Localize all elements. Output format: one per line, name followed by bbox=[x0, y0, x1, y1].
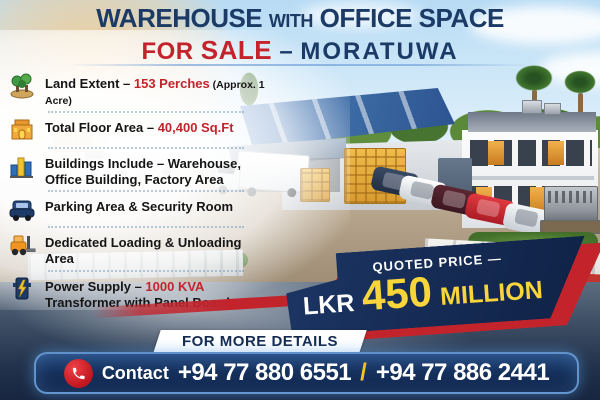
phone-number-2[interactable]: +94 77 886 2441 bbox=[376, 359, 549, 387]
office-roof bbox=[468, 112, 596, 132]
parking-car-icon bbox=[8, 195, 36, 223]
feature-row-buildings: Buildings Include – Warehouse, Office Bu… bbox=[8, 152, 276, 188]
phone-icon bbox=[64, 359, 93, 388]
feature-text: Dedicated Loading & Unloading Area bbox=[45, 231, 269, 267]
headline: WAREHOUSE WITH OFFICE SPACE bbox=[0, 4, 600, 33]
warehouse-sale-poster: WAREHOUSE WITH OFFICE SPACE FOR SALE – M… bbox=[0, 0, 600, 400]
contact-label: Contact bbox=[102, 363, 169, 384]
poster-header: WAREHOUSE WITH OFFICE SPACE FOR SALE – M… bbox=[0, 4, 600, 66]
power-transformer-icon bbox=[8, 275, 36, 303]
feature-text: Buildings Include – Warehouse, Office Bu… bbox=[45, 152, 241, 188]
land-trees-icon bbox=[8, 72, 36, 100]
feature-highlight: 153 Perches bbox=[134, 76, 210, 91]
feature-label: Power Supply – bbox=[45, 279, 145, 294]
feature-row-land-extent: Land Extent – 153 Perches (Approx. 1 Acr… bbox=[8, 72, 276, 108]
details-label: FOR MORE DETAILS bbox=[157, 330, 363, 353]
header-divider bbox=[70, 64, 530, 66]
list-separator bbox=[48, 111, 244, 113]
headline-office-space: OFFICE SPACE bbox=[320, 3, 504, 33]
feature-list: Land Extent – 153 Perches (Approx. 1 Acr… bbox=[8, 72, 276, 311]
feature-highlight: 1000 KVA bbox=[145, 279, 204, 294]
palm-tree bbox=[558, 66, 600, 117]
rooftop-ac-unit bbox=[544, 103, 561, 115]
headline-with: WITH bbox=[269, 11, 313, 31]
details-banner: FOR MORE DETAILS bbox=[153, 330, 366, 353]
feature-text: Total Floor Area – 40,400 Sq.Ft bbox=[45, 116, 234, 136]
feature-label: Land Extent – bbox=[45, 76, 134, 91]
feature-label: Total Floor Area – bbox=[45, 120, 158, 135]
subheadline: FOR SALE – MORATUWA bbox=[0, 35, 600, 66]
feature-row-parking: Parking Area & Security Room bbox=[8, 195, 276, 223]
phone-handset-icon bbox=[71, 366, 86, 381]
phone-separator: / bbox=[360, 359, 367, 387]
list-separator bbox=[48, 226, 244, 228]
price-amount: 450 bbox=[360, 271, 433, 318]
feature-label: Dedicated Loading & Unloading Area bbox=[45, 235, 241, 266]
rooftop-ac-unit bbox=[522, 100, 542, 114]
phone-number-1[interactable]: +94 77 880 6551 bbox=[178, 359, 351, 387]
headline-warehouse: WAREHOUSE bbox=[96, 3, 262, 33]
contact-bar[interactable]: Contact +94 77 880 6551 / +94 77 886 244… bbox=[34, 352, 579, 394]
lit-window bbox=[488, 141, 504, 165]
feature-text: Parking Area & Security Room bbox=[45, 195, 233, 215]
list-separator bbox=[48, 270, 244, 272]
feature-text: Land Extent – 153 Perches (Approx. 1 Acr… bbox=[45, 72, 269, 108]
feature-label: Parking Area & Security Room bbox=[45, 199, 233, 214]
feature-row-loading: Dedicated Loading & Unloading Area bbox=[8, 231, 276, 267]
subheadline-sale: SALE bbox=[201, 35, 272, 65]
list-separator bbox=[48, 147, 244, 149]
generator-grill bbox=[548, 191, 592, 203]
feature-row-floor-area: Total Floor Area – 40,400 Sq.Ft bbox=[8, 116, 276, 144]
feature-label: Buildings Include – Warehouse, bbox=[45, 156, 241, 171]
loading-forklift-icon bbox=[8, 231, 36, 259]
price-currency: LKR bbox=[302, 289, 355, 322]
list-separator bbox=[48, 190, 244, 192]
feature-highlight: 40,400 Sq.Ft bbox=[158, 120, 234, 135]
subheadline-city: MORATUWA bbox=[300, 38, 458, 65]
buildings-chart-icon bbox=[8, 152, 36, 180]
subheadline-for: FOR bbox=[141, 38, 193, 65]
floor-area-building-icon bbox=[8, 116, 36, 144]
feature-line2: Office Building, Factory Area bbox=[45, 172, 241, 188]
subheadline-dash: – bbox=[279, 38, 293, 65]
lit-window bbox=[548, 141, 564, 165]
